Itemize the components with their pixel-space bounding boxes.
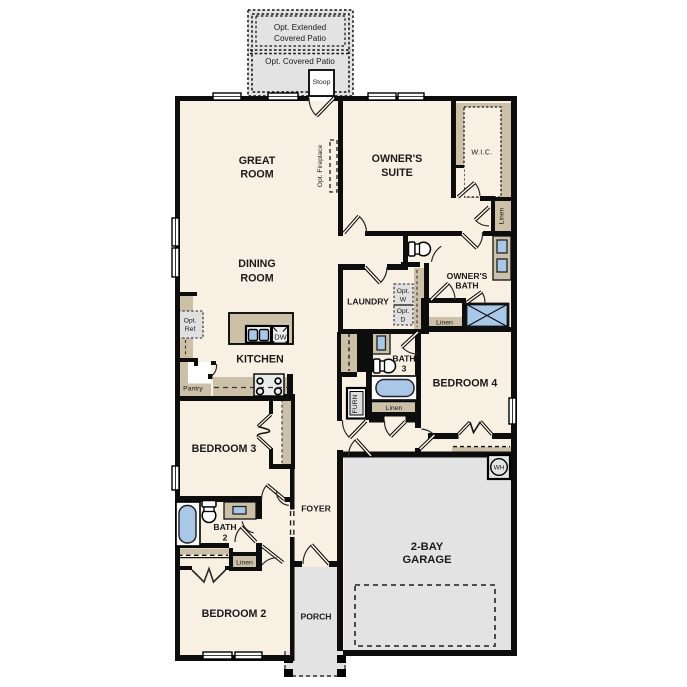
svg-text:OWNER'S: OWNER'S [447, 271, 488, 281]
svg-text:Opt.: Opt. [184, 318, 197, 325]
svg-text:Opt.: Opt. [397, 288, 410, 295]
svg-text:FOYER: FOYER [301, 504, 331, 514]
svg-text:BEDROOM 2: BEDROOM 2 [202, 608, 267, 620]
svg-text:Opt. Covered Patio: Opt. Covered Patio [265, 57, 335, 66]
svg-text:PORCH: PORCH [300, 612, 331, 622]
svg-text:Ref: Ref [185, 326, 196, 333]
svg-text:W: W [400, 297, 407, 304]
svg-text:Linen: Linen [436, 320, 453, 327]
svg-text:2-BAY: 2-BAY [411, 541, 444, 553]
svg-text:Opt.: Opt. [397, 308, 410, 315]
svg-text:Opt. Extended: Opt. Extended [274, 23, 327, 32]
svg-text:Covered Patio: Covered Patio [274, 34, 326, 43]
svg-text:W.I.C.: W.I.C. [471, 148, 492, 157]
svg-text:GARAGE: GARAGE [402, 554, 452, 566]
svg-text:BATH: BATH [213, 522, 236, 532]
svg-text:ROOM: ROOM [240, 169, 273, 181]
svg-text:KITCHEN: KITCHEN [236, 354, 284, 366]
svg-text:BATH: BATH [392, 354, 415, 364]
svg-text:BEDROOM 3: BEDROOM 3 [192, 443, 257, 455]
svg-text:BEDROOM 4: BEDROOM 4 [433, 377, 498, 389]
svg-text:OWNER'S: OWNER'S [372, 153, 423, 165]
svg-text:Linen: Linen [236, 560, 253, 567]
svg-text:Linen: Linen [499, 207, 506, 224]
svg-text:D: D [401, 317, 406, 324]
svg-text:LAUNDRY: LAUNDRY [347, 297, 389, 307]
svg-text:Opt. Fireplace: Opt. Fireplace [317, 144, 324, 187]
svg-text:FURN: FURN [352, 394, 359, 413]
svg-text:3: 3 [402, 363, 407, 373]
svg-text:Linen: Linen [386, 405, 403, 412]
svg-text:ROOM: ROOM [240, 273, 273, 285]
svg-text:DW: DW [274, 333, 287, 342]
svg-text:WH: WH [494, 464, 505, 471]
svg-text:Pantry: Pantry [183, 386, 203, 393]
svg-text:2: 2 [223, 533, 228, 543]
svg-text:Stoop: Stoop [313, 79, 331, 86]
svg-text:GREAT: GREAT [239, 155, 276, 167]
svg-text:SUITE: SUITE [381, 167, 412, 179]
svg-text:BATH: BATH [455, 281, 478, 291]
svg-text:DINING: DINING [238, 258, 275, 270]
